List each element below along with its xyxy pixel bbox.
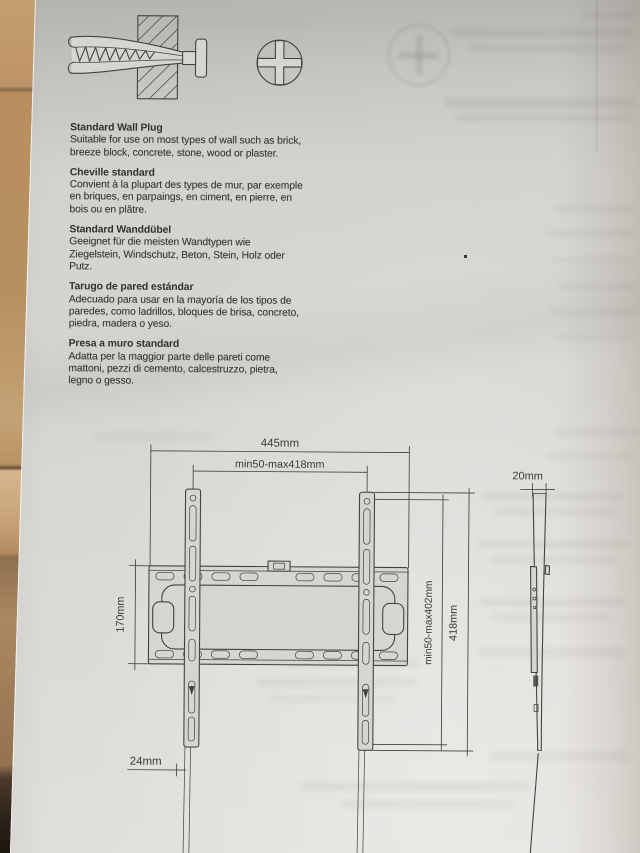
dim-overall-width: 445mm (261, 438, 299, 450)
rail-extension-lines (183, 747, 365, 853)
manual-page: Standard Wall Plug Suitable for use on m… (0, 0, 640, 853)
section-de: Standard Wanddübel Geeignet für die meis… (69, 224, 389, 275)
dim-bracket-height: 418mm (448, 605, 460, 641)
section-body: Adecuado para usar en la mayoría de los … (69, 294, 389, 333)
bracket-side-view (529, 493, 551, 853)
section-fr: Cheville standard Convient à la plupart … (69, 167, 389, 218)
screw-head (195, 39, 206, 77)
dim-plate-height: 170mm (115, 597, 127, 633)
mount-dimension-diagram: 445mm min50-max418mm 20mm 170mm min50-ma… (0, 420, 637, 853)
dim-rail-width: 24mm (130, 756, 162, 768)
section-es: Tarugo de pared estándar Adecuado para u… (69, 281, 389, 332)
section-body: Convient à la plupart des types de mur, … (69, 179, 389, 218)
section-body: Geeignet für die meisten Wandtypen wie Z… (69, 237, 389, 276)
level-tab (268, 561, 290, 571)
section-it: Presa a muro standard Adatta per la magg… (68, 339, 388, 390)
photo-of-manual-page: Standard Wall Plug Suitable for use on m… (0, 0, 640, 853)
dim-mount-width-range: min50-max418mm (235, 458, 324, 471)
dim-mount-height-range: min50-max402mm (423, 581, 435, 665)
wall-plug-illustration (0, 0, 640, 124)
phillips-screw-icon (257, 40, 302, 85)
section-body: Suitable for use on most types of wall s… (70, 135, 390, 162)
section-en: Standard Wall Plug Suitable for use on m… (70, 122, 390, 161)
language-sections: Standard Wall Plug Suitable for use on m… (68, 122, 390, 398)
section-body: Adatta per la maggior parte delle pareti… (68, 351, 388, 390)
right-rail (358, 492, 375, 750)
dim-side-depth: 20mm (512, 470, 543, 482)
left-rail (184, 489, 201, 747)
